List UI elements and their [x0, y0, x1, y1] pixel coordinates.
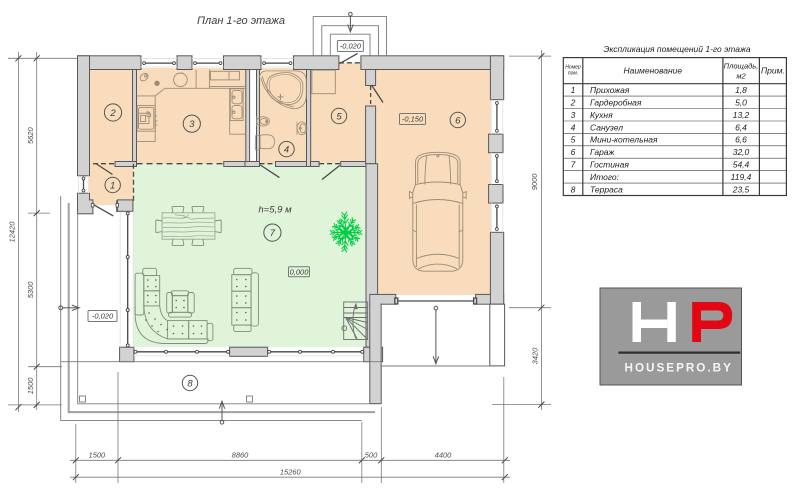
- svg-text:6,4: 6,4: [735, 122, 747, 132]
- svg-text:0,000: 0,000: [290, 267, 310, 276]
- svg-text:1: 1: [110, 180, 115, 191]
- svg-text:15260: 15260: [280, 468, 302, 477]
- svg-text:Кухня: Кухня: [590, 110, 613, 120]
- svg-text:9000: 9000: [530, 173, 539, 191]
- svg-text:5300: 5300: [26, 281, 35, 299]
- svg-text:пом.: пом.: [568, 71, 578, 77]
- svg-text:5,0: 5,0: [735, 97, 747, 107]
- svg-text:1500: 1500: [89, 451, 107, 460]
- svg-text:2: 2: [570, 97, 576, 107]
- svg-text:8: 8: [571, 184, 576, 194]
- svg-text:-0,020: -0,020: [340, 42, 362, 51]
- svg-text:4: 4: [284, 145, 289, 156]
- svg-text:23,5: 23,5: [732, 184, 750, 194]
- svg-text:32,0: 32,0: [733, 147, 750, 157]
- svg-text:1: 1: [571, 85, 576, 95]
- svg-text:6: 6: [455, 115, 461, 126]
- svg-text:Гостиная: Гостиная: [590, 160, 629, 170]
- svg-text:5: 5: [336, 111, 342, 122]
- svg-text:Прихожая: Прихожая: [590, 85, 630, 95]
- svg-text:HOUSEPRO.BY: HOUSEPRO.BY: [625, 362, 733, 375]
- svg-text:-0,020: -0,020: [92, 312, 114, 321]
- svg-text:7: 7: [270, 228, 276, 239]
- svg-text:Экспликация помещений 1-го эта: Экспликация помещений 1-го этажа: [603, 44, 750, 54]
- svg-text:м2: м2: [736, 72, 746, 81]
- svg-text:13,2: 13,2: [733, 110, 750, 120]
- svg-text:8860: 8860: [232, 451, 250, 460]
- svg-text:500: 500: [365, 451, 378, 460]
- svg-text:Санузел: Санузел: [590, 122, 623, 132]
- svg-text:Гараж: Гараж: [590, 147, 616, 157]
- svg-text:1,8: 1,8: [735, 85, 747, 95]
- svg-text:12420: 12420: [8, 221, 17, 243]
- svg-text:3420: 3420: [531, 347, 540, 365]
- svg-text:6,6: 6,6: [735, 135, 747, 145]
- svg-text:7: 7: [571, 160, 576, 170]
- svg-text:Итого:: Итого:: [590, 172, 620, 182]
- svg-text:54,4: 54,4: [733, 160, 750, 170]
- svg-text:h=5,9 м: h=5,9 м: [258, 205, 292, 216]
- svg-text:2: 2: [109, 108, 116, 119]
- svg-text:119,4: 119,4: [731, 172, 752, 182]
- svg-text:3: 3: [189, 119, 195, 130]
- svg-text:Прим.: Прим.: [761, 66, 785, 76]
- svg-text:Гардеробная: Гардеробная: [590, 97, 642, 107]
- svg-text:План 1-го этажа: План 1-го этажа: [197, 15, 285, 27]
- svg-text:5620: 5620: [26, 127, 35, 145]
- svg-text:Мини-котельная: Мини-котельная: [590, 135, 658, 145]
- svg-text:1500: 1500: [26, 377, 35, 395]
- svg-text:5: 5: [571, 135, 576, 145]
- svg-text:Площадь,: Площадь,: [724, 62, 759, 71]
- svg-text:4: 4: [571, 122, 576, 132]
- svg-text:Терраса: Терраса: [590, 184, 623, 194]
- svg-text:-0,150: -0,150: [402, 115, 424, 124]
- svg-text:6: 6: [571, 147, 576, 157]
- svg-text:3: 3: [571, 110, 576, 120]
- svg-text:4400: 4400: [435, 451, 453, 460]
- svg-text:Наименование: Наименование: [623, 66, 682, 76]
- svg-text:8: 8: [187, 378, 193, 389]
